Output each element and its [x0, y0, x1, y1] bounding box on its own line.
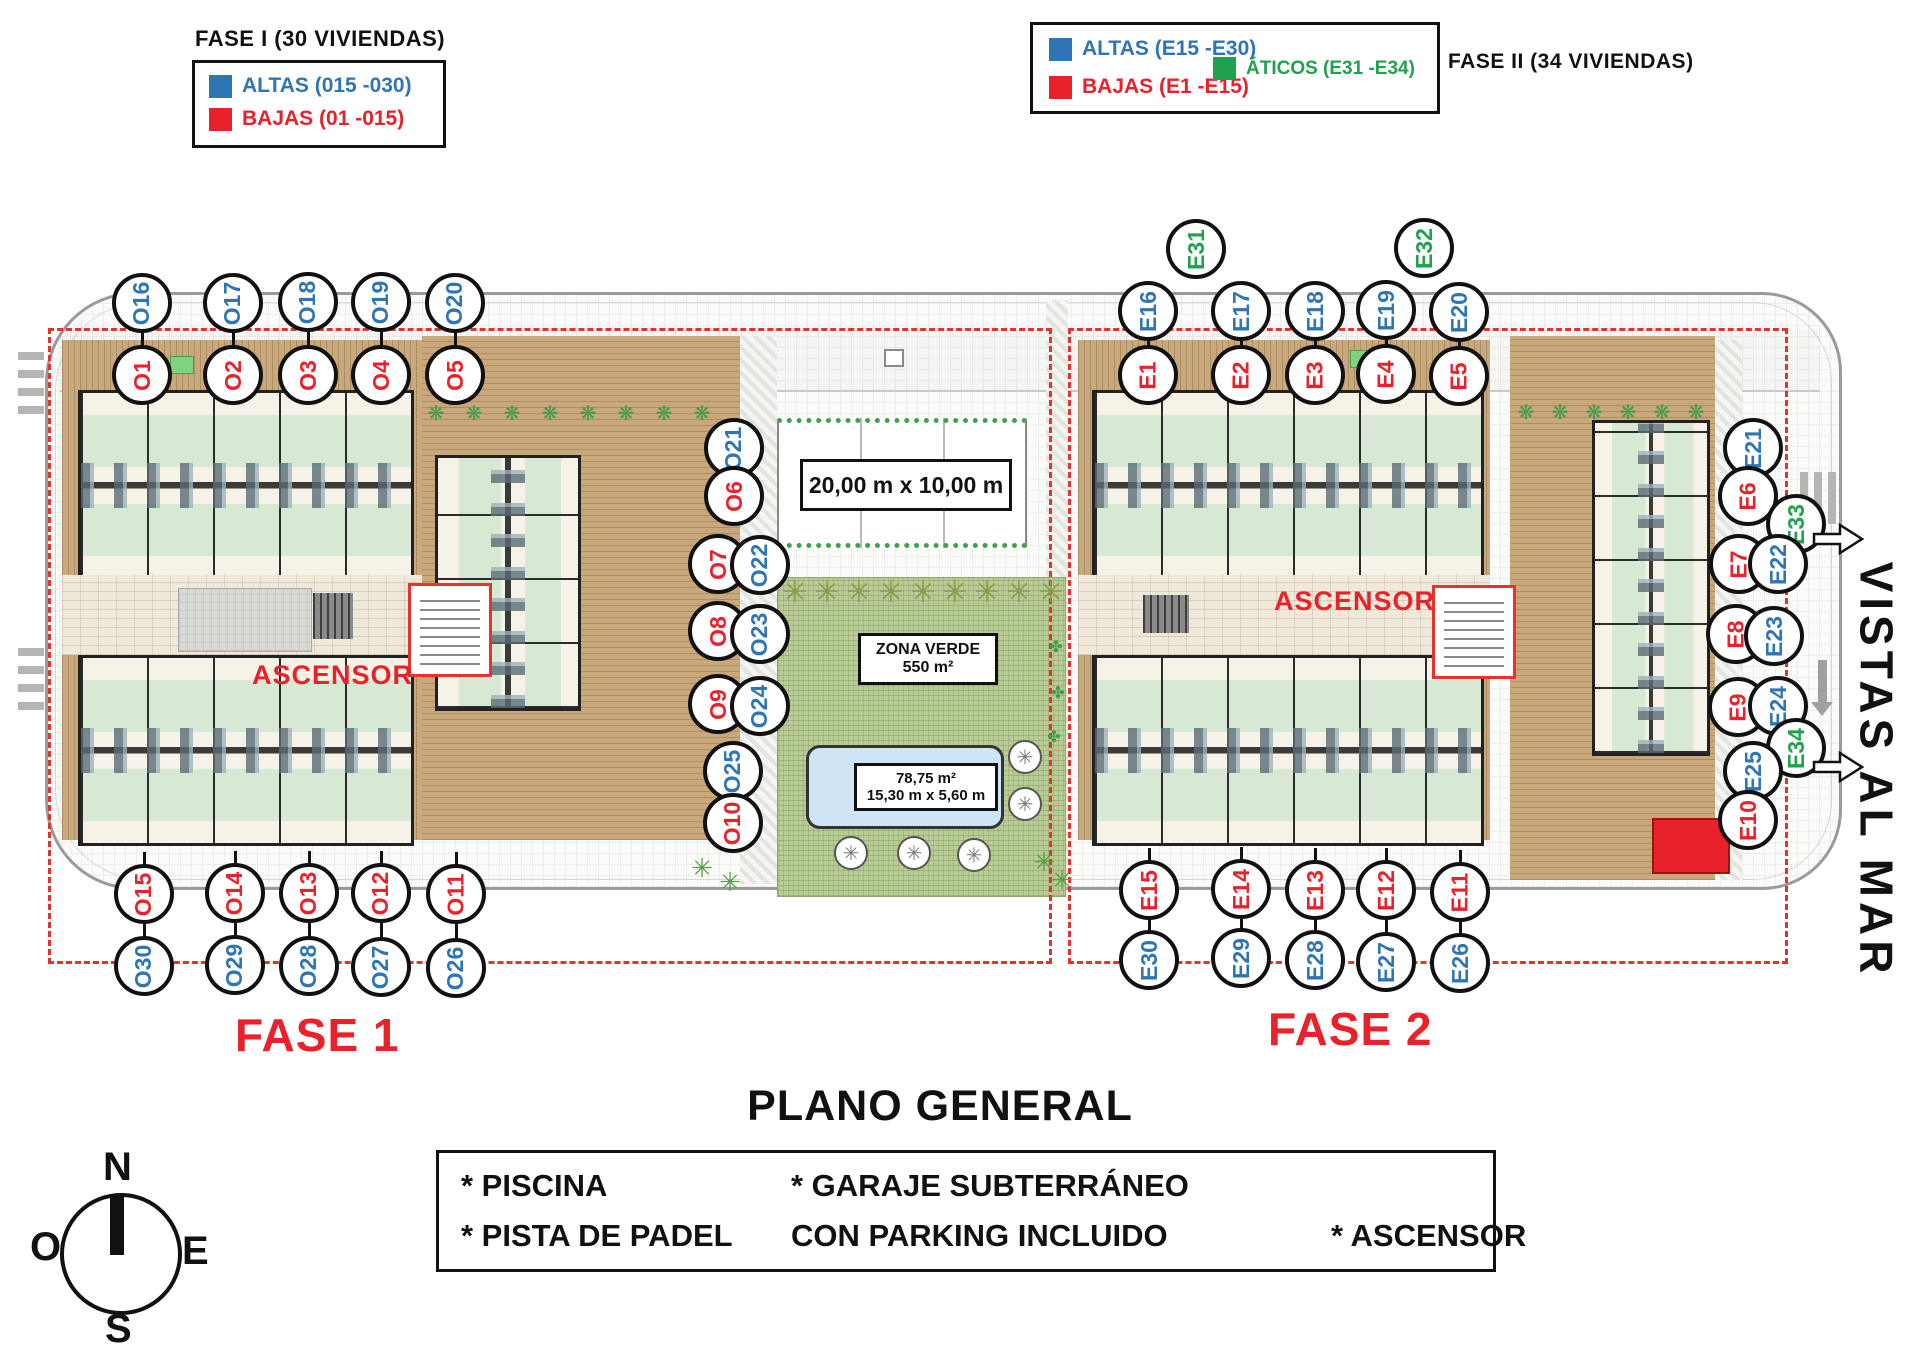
unit-circle-label: E26: [1447, 943, 1474, 984]
unit-circle-E1: E1: [1118, 345, 1178, 405]
unit-circle-label: O24: [746, 684, 773, 727]
unit-circle-E23: E23: [1744, 606, 1804, 666]
unit-circle-label: E12: [1373, 870, 1400, 911]
unit-circle-O22: O22: [730, 535, 790, 595]
unit-circle-E30: E30: [1119, 930, 1179, 990]
unit-circle-label: O17: [219, 281, 246, 324]
unit-circle-label: E19: [1373, 290, 1400, 331]
unit-circle-E20: E20: [1429, 282, 1489, 342]
unit-circle-label: O15: [130, 872, 157, 915]
unit-circle-O4: O4: [351, 345, 411, 405]
compass-needle: [110, 1197, 124, 1255]
unit-circle-O6: O6: [704, 466, 764, 526]
unit-circle-O25: O25: [703, 741, 763, 801]
unit-circle-O5: O5: [425, 345, 485, 405]
unit-circle-E15: E15: [1119, 860, 1179, 920]
unit-circle-label: E32: [1411, 228, 1438, 269]
unit-circle-label: E11: [1447, 872, 1474, 912]
unit-circle-O27: O27: [351, 937, 411, 997]
unit-circle-label: O6: [721, 481, 748, 512]
unit-circle-label: E23: [1761, 616, 1788, 657]
unit-circle-E12: E12: [1356, 860, 1416, 920]
unit-circle-O18: O18: [278, 272, 338, 332]
unit-circle-O23: O23: [730, 604, 790, 664]
unit-circle-label: O10: [719, 801, 746, 844]
unit-circle-O14: O14: [205, 863, 265, 923]
feature-piscina: * PISCINA: [461, 1168, 791, 1204]
unit-circle-E22: E22: [1748, 534, 1808, 594]
unit-circle-label: E15: [1136, 870, 1163, 911]
down-arrow-icon: [1818, 660, 1827, 702]
sea-arrow-icon: [1812, 522, 1864, 556]
unit-circle-label: E22: [1765, 544, 1792, 585]
unit-circle-E31: E31: [1166, 219, 1226, 279]
unit-circle-label: E17: [1228, 291, 1255, 332]
unit-circle-label: O21: [720, 426, 747, 469]
unit-circle-label: E2: [1227, 361, 1254, 389]
page-title: PLANO GENERAL: [560, 1082, 1320, 1131]
unit-circle-label: O9: [705, 689, 732, 720]
unit-circle-E3: E3: [1285, 345, 1345, 405]
unit-circle-label: O29: [221, 943, 248, 986]
sea-arrow-icon: [1812, 750, 1864, 784]
unit-circle-E18: E18: [1285, 281, 1345, 341]
unit-circle-O19: O19: [351, 272, 411, 332]
features-box: * PISCINA * GARAJE SUBTERRÁNEO * PISTA D…: [436, 1150, 1496, 1272]
unit-circle-label: O13: [295, 871, 322, 914]
unit-circle-label: O7: [705, 549, 732, 580]
unit-circle-label: E25: [1740, 751, 1767, 792]
unit-circle-label: O28: [295, 944, 322, 987]
unit-circle-label: E6: [1734, 482, 1761, 510]
unit-circle-O28: O28: [279, 936, 339, 996]
unit-circle-O13: O13: [279, 863, 339, 923]
unit-circle-label: O12: [367, 871, 394, 914]
unit-circle-E2: E2: [1211, 345, 1271, 405]
unit-circle-O17: O17: [203, 273, 263, 333]
fase2-title: FASE 2: [1268, 1002, 1433, 1056]
unit-circle-label: O16: [128, 281, 155, 324]
unit-circle-O3: O3: [278, 345, 338, 405]
unit-circle-label: O2: [220, 360, 247, 391]
unit-circle-label: O18: [294, 280, 321, 323]
unit-circle-E17: E17: [1211, 281, 1271, 341]
plano-general-page: FASE I (30 VIVIENDAS) ALTAS (015 -030) B…: [0, 0, 1920, 1356]
unit-circle-label: E16: [1135, 291, 1162, 332]
unit-circle-label: O26: [442, 946, 469, 989]
unit-circle-label: O19: [367, 280, 394, 323]
unit-circle-E5: E5: [1429, 346, 1489, 406]
compass-south: S: [105, 1307, 132, 1352]
unit-circle-E11: E11: [1430, 862, 1490, 922]
unit-circle-label: O30: [130, 944, 157, 987]
unit-circle-label: E21: [1740, 428, 1767, 469]
unit-circle-label: E4: [1372, 360, 1399, 388]
unit-circle-label: O22: [746, 543, 773, 586]
unit-circle-E4: E4: [1356, 344, 1416, 404]
unit-circle-label: E34: [1783, 728, 1810, 769]
unit-circle-E32: E32: [1394, 218, 1454, 278]
unit-circle-E29: E29: [1211, 928, 1271, 988]
unit-circle-label: O5: [442, 360, 469, 391]
unit-circle-O16: O16: [112, 273, 172, 333]
unit-circle-O10: O10: [703, 793, 763, 853]
unit-circle-E28: E28: [1285, 930, 1345, 990]
feature-padel: * PISTA DE PADEL: [461, 1218, 791, 1254]
unit-circle-label: E13: [1302, 870, 1329, 911]
unit-circle-label: E30: [1136, 940, 1163, 981]
unit-circle-E13: E13: [1285, 860, 1345, 920]
unit-circle-label: O4: [368, 360, 395, 391]
unit-circle-label: O25: [719, 749, 746, 792]
unit-circle-label: E1: [1134, 361, 1161, 389]
feature-garaje: * GARAJE SUBTERRÁNEO: [791, 1168, 1331, 1204]
unit-circle-label: E31: [1183, 229, 1210, 270]
unit-circle-E19: E19: [1356, 280, 1416, 340]
compass-east: E: [182, 1229, 209, 1274]
unit-circle-label: E14: [1228, 869, 1255, 910]
unit-circle-label: E10: [1735, 800, 1762, 841]
unit-circle-label: O1: [129, 360, 156, 391]
unit-circle-E14: E14: [1211, 859, 1271, 919]
unit-circle-O1: O1: [112, 345, 172, 405]
unit-circle-O30: O30: [114, 936, 174, 996]
unit-circle-O26: O26: [426, 938, 486, 998]
unit-circle-O2: O2: [203, 345, 263, 405]
compass: N O E S: [30, 1145, 230, 1355]
unit-circle-label: O20: [441, 281, 468, 324]
feature-ascensor: * ASCENSOR: [1331, 1218, 1526, 1254]
unit-circle-label: E29: [1228, 938, 1255, 979]
unit-circle-O15: O15: [114, 864, 174, 924]
fase1-title: FASE 1: [235, 1008, 400, 1062]
feature-parking: CON PARKING INCLUIDO: [791, 1218, 1331, 1254]
unit-circle-O11: O11: [426, 864, 486, 924]
unit-circle-E10: E10: [1718, 790, 1778, 850]
compass-north: N: [103, 1145, 132, 1190]
unit-circle-E27: E27: [1356, 932, 1416, 992]
unit-circle-label: O8: [705, 616, 732, 647]
unit-circle-O20: O20: [425, 273, 485, 333]
unit-circle-E16: E16: [1118, 281, 1178, 341]
unit-circle-label: E20: [1446, 292, 1473, 333]
unit-circle-label: O14: [221, 871, 248, 914]
unit-circle-label: O11: [443, 873, 470, 915]
unit-circle-label: E3: [1301, 361, 1328, 389]
unit-circle-label: O23: [746, 612, 773, 655]
unit-circle-label: O3: [295, 360, 322, 391]
unit-circle-O24: O24: [730, 676, 790, 736]
unit-circle-label: E27: [1373, 942, 1400, 983]
unit-circle-O29: O29: [205, 935, 265, 995]
unit-circle-O12: O12: [351, 863, 411, 923]
compass-west: O: [30, 1225, 61, 1270]
unit-circle-label: E5: [1445, 362, 1472, 390]
unit-circle-E26: E26: [1430, 933, 1490, 993]
unit-circle-label: O27: [367, 945, 394, 988]
unit-circle-label: E18: [1302, 291, 1329, 332]
unit-circle-label: E28: [1302, 940, 1329, 981]
